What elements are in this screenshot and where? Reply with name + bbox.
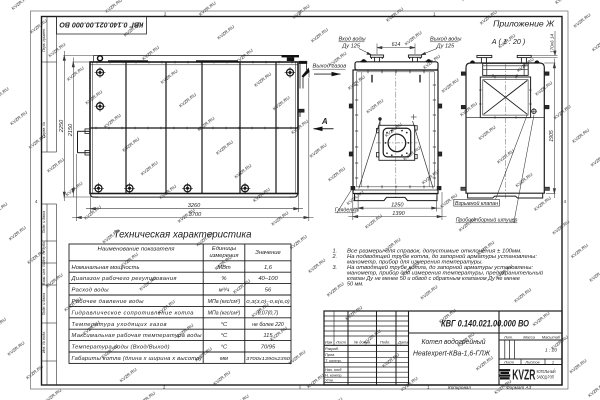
svg-text:Диапазон рабочего регулировани: Диапазон рабочего регулирования — [71, 276, 177, 282]
svg-text:не более 220: не более 220 — [252, 322, 284, 328]
svg-text:КВГ 0.140.021.00.000 ВО: КВГ 0.140.021.00.000 ВО — [441, 318, 529, 329]
svg-text:Подп. и дата: Подп. и дата — [42, 211, 46, 234]
svg-text:Максимальная рабочая температу: Максимальная рабочая температура воды — [72, 333, 203, 339]
svg-text:Рабочее давление воды: Рабочее давление воды — [72, 299, 145, 305]
svg-text:Габариты котла (длина х ширина: Габариты котла (длина х ширина х высота) — [72, 356, 202, 362]
svg-text:Подп. и дата: Подп. и дата — [42, 293, 46, 316]
svg-text:3700: 3700 — [189, 212, 202, 218]
svg-text:Котел водогрейный: Котел водогрейный — [422, 337, 486, 346]
svg-text:°С: °С — [221, 322, 228, 328]
svg-text:Лист: Лист — [503, 359, 515, 364]
svg-text:Справ. №: Справ. № — [42, 122, 46, 138]
svg-text:Наименование показателя: Наименование показателя — [98, 247, 175, 253]
svg-text:Разраб.: Разраб. — [325, 346, 339, 351]
svg-text:Подп.: Подп. — [380, 340, 390, 345]
svg-text:Расход воды: Расход воды — [72, 288, 110, 294]
svg-text:56: 56 — [265, 288, 272, 294]
svg-text:КВГ 0.140.021.00.000 ВО: КВГ 0.140.021.00.000 ВО — [59, 20, 143, 29]
svg-text:170х6 14: 170х6 14 — [550, 34, 555, 53]
svg-text:МПа (кгс/см²): МПа (кгс/см²) — [208, 299, 241, 305]
svg-text:Взрывной клапан: Взрывной клапан — [455, 200, 498, 207]
svg-text:КОТЕЛЬНЫЙ: КОТЕЛЬНЫЙ — [537, 369, 556, 374]
svg-text:Н. контр.: Н. контр. — [325, 372, 343, 377]
svg-text:%: % — [221, 276, 226, 282]
svg-text:Температура воды (Вход/Выход): Температура воды (Вход/Выход) — [72, 345, 170, 351]
svg-text:Температура уходящих газов: Температура уходящих газов — [72, 322, 167, 328]
svg-text:3260: 3260 — [188, 203, 201, 209]
svg-text:614: 614 — [392, 42, 401, 48]
svg-text:А ( 1 : 20 ): А ( 1 : 20 ) — [491, 37, 526, 46]
svg-text:№ докум.: № докум. — [354, 340, 371, 345]
svg-text:50 мм.: 50 мм. — [347, 281, 364, 287]
svg-text:А: А — [321, 117, 328, 126]
svg-text:МВт: МВт — [217, 265, 231, 271]
svg-text:Ду 125: Ду 125 — [341, 44, 361, 50]
svg-text:Инв. № дубл.: Инв. № дубл. — [42, 241, 46, 263]
svg-text:Т. контр.: Т. контр. — [325, 358, 342, 363]
svg-text:3700х1390х2350: 3700х1390х2350 — [246, 356, 290, 362]
svg-text:Единицы: Единицы — [212, 246, 237, 252]
svg-text:Масштаб: Масштаб — [542, 334, 561, 339]
svg-text:°С: °С — [221, 333, 228, 339]
svg-text:2150: 2150 — [68, 123, 74, 137]
svg-text:м³/ч: м³/ч — [219, 288, 230, 294]
svg-text:Приложение Ж: Приложение Ж — [493, 19, 555, 28]
svg-text:Масса: Масса — [523, 334, 535, 339]
svg-text:1: 1 — [552, 359, 554, 364]
svg-text:Пров.: Пров. — [325, 352, 335, 357]
svg-text:Лит.: Лит. — [503, 334, 513, 339]
svg-text:KVZR: KVZR — [512, 368, 536, 384]
svg-text:Взам. инв. №: Взам. инв. № — [42, 263, 46, 285]
svg-text:ЗАВОД РЭП: ЗАВОД РЭП — [537, 375, 555, 380]
svg-text:70/95: 70/95 — [261, 345, 276, 351]
svg-text:клапан Ду не менее 50 и обвод: клапан Ду не менее 50 и обвод с обратным… — [347, 276, 520, 282]
svg-text:2.: 2. — [332, 254, 338, 260]
svg-text:2250: 2250 — [59, 119, 65, 133]
svg-text:115: 115 — [263, 333, 273, 339]
svg-text:Ду 125: Ду 125 — [436, 44, 456, 50]
svg-text:3.: 3. — [333, 265, 338, 271]
svg-text:Листов: Листов — [524, 359, 539, 364]
svg-text:40–100: 40–100 — [258, 276, 278, 282]
svg-text:Лист: Лист — [335, 340, 347, 345]
svg-text:0,3(3,0)–0,6(6,0): 0,3(3,0)–0,6(6,0) — [246, 299, 290, 305]
svg-text:1,6: 1,6 — [264, 265, 273, 271]
svg-text:Перв. примен.: Перв. примен. — [42, 28, 46, 52]
svg-text:1905: 1905 — [549, 130, 555, 142]
svg-text:измерения: измерения — [209, 253, 238, 259]
svg-text:Изм: Изм — [325, 340, 333, 345]
svg-text:Дата: Дата — [397, 340, 409, 345]
svg-text:1 : 20: 1 : 20 — [545, 347, 557, 353]
svg-text:мм: мм — [220, 356, 228, 362]
svg-text:0,07(0,7): 0,07(0,7) — [258, 310, 279, 316]
svg-text:1390: 1390 — [392, 211, 405, 217]
svg-text:°С: °С — [221, 345, 228, 351]
svg-text:Инв. № подл.: Инв. № подл. — [42, 331, 46, 353]
svg-text:1250: 1250 — [391, 203, 404, 209]
svg-text:Heatexpert-КВа-1,6-ГЛЖ: Heatexpert-КВа-1,6-ГЛЖ — [413, 349, 491, 358]
svg-text:Утв.: Утв. — [325, 378, 334, 383]
svg-text:Номинальная мощность: Номинальная мощность — [72, 265, 140, 271]
svg-text:Значение: Значение — [255, 250, 281, 256]
svg-text:Техническая характеристика: Техническая характеристика — [114, 230, 252, 241]
svg-text:Гидравлическое сопротивление к: Гидравлическое сопротивление котла — [72, 310, 195, 316]
svg-text:Выход газов: Выход газов — [313, 64, 347, 70]
svg-text:МПа (кгс/см²): МПа (кгс/см²) — [208, 310, 241, 316]
